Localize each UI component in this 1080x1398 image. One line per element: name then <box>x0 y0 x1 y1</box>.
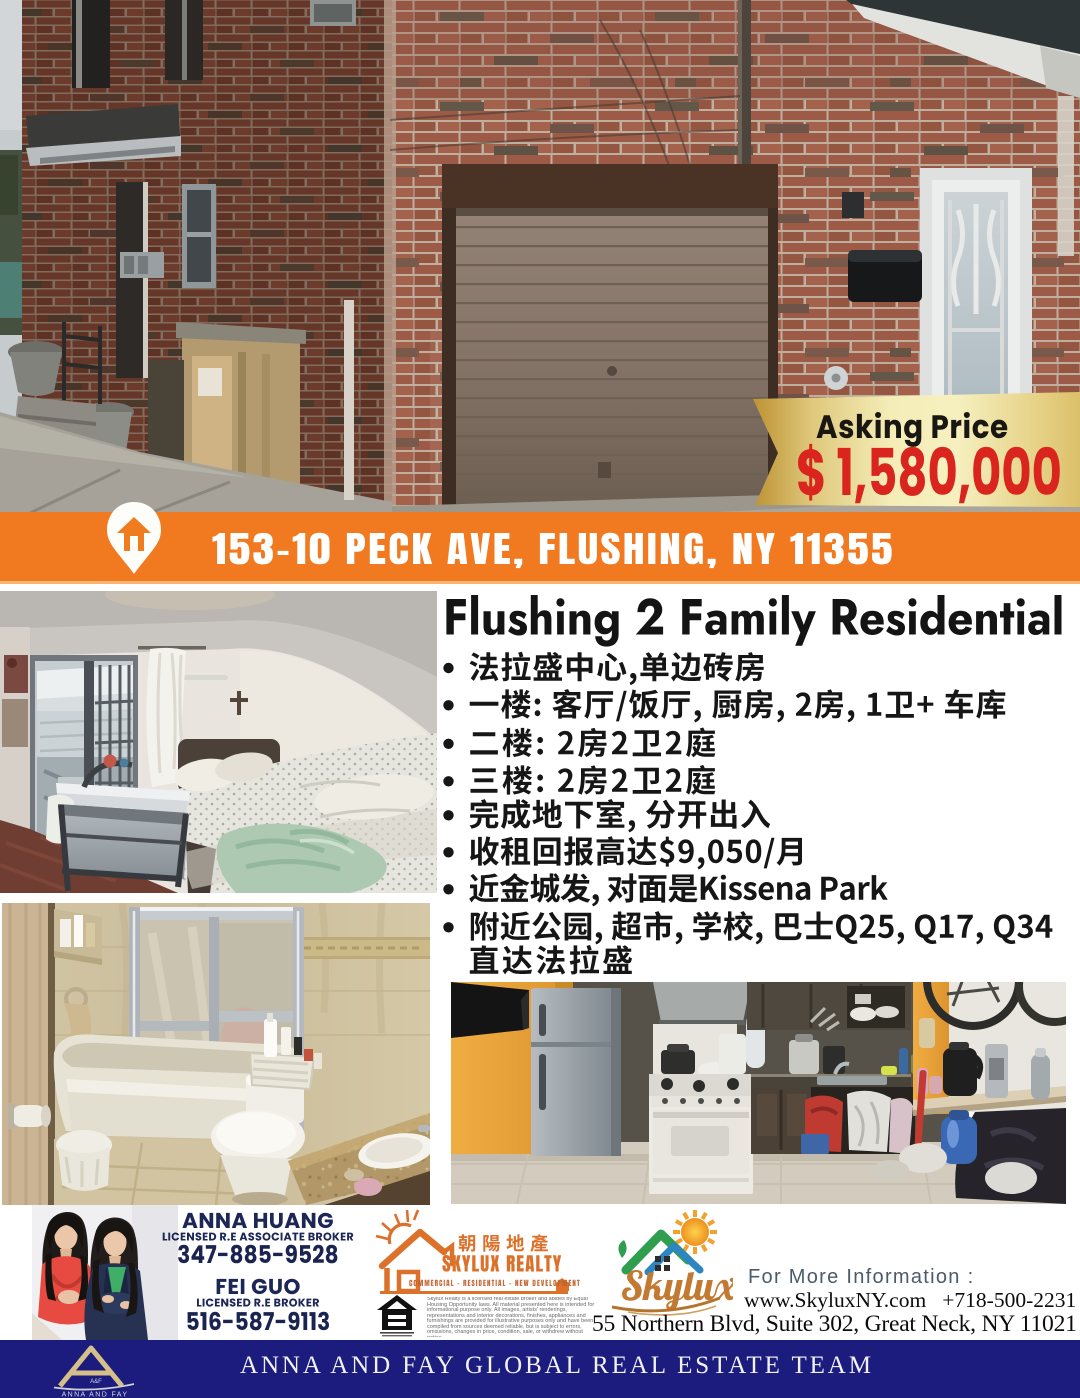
svg-text:A&F: A&F <box>90 1379 102 1385</box>
svg-text:ANNA AND FAY: ANNA AND FAY <box>62 1392 129 1398</box>
